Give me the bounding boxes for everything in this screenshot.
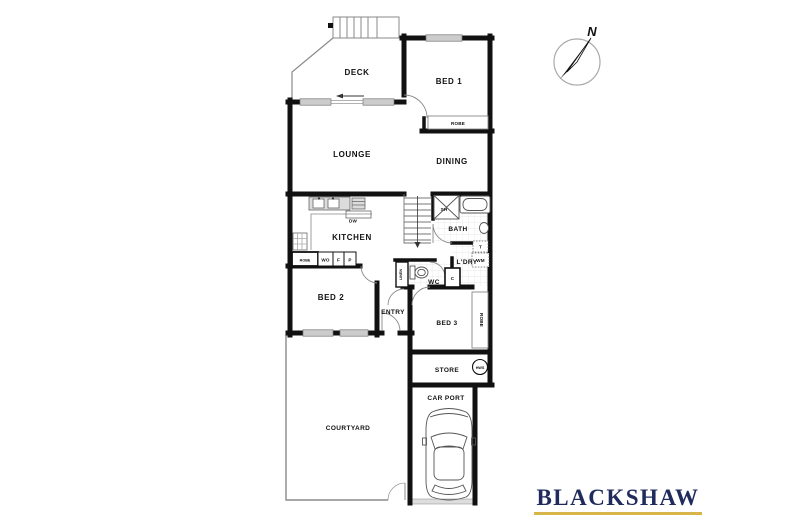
slide-arrow-icon bbox=[336, 94, 343, 99]
toilet-cistern bbox=[410, 266, 415, 279]
agency-logo: BLACKSHAW bbox=[534, 486, 702, 515]
courtyard-outline bbox=[286, 335, 405, 500]
deck-outline bbox=[292, 38, 333, 100]
sliding-door bbox=[331, 94, 364, 104]
label-linen: LINEN bbox=[399, 269, 403, 280]
compass: N bbox=[554, 24, 600, 85]
room-label-kitchen: KITCHEN bbox=[332, 233, 372, 242]
room-label-deck: DECK bbox=[344, 68, 369, 77]
dishwasher-box bbox=[346, 211, 371, 218]
label-c: C bbox=[451, 276, 455, 281]
label-sh: SH bbox=[441, 207, 448, 212]
room-label-bed3: BED 3 bbox=[436, 320, 457, 327]
room-label-bed1: BED 1 bbox=[436, 77, 463, 86]
room-label-robe3: ROBE bbox=[479, 313, 484, 327]
car-icon bbox=[423, 409, 476, 501]
tap-icon bbox=[318, 197, 320, 199]
room-label-ldry: L'DRY bbox=[457, 259, 478, 266]
room-label-carport: CAR PORT bbox=[427, 395, 464, 402]
label-dw: DW bbox=[349, 219, 358, 224]
floorplan-drawing: HWS N DECK BED 1 ROBE LOUNGE DINING KITC… bbox=[0, 0, 790, 527]
stairs-down-arrow-icon bbox=[415, 242, 421, 248]
label-p: P bbox=[348, 258, 351, 263]
label-robe2: ROBE bbox=[300, 259, 311, 263]
room-label-courtyard: COURTYARD bbox=[326, 425, 371, 432]
hws-label: HWS bbox=[476, 366, 485, 370]
internal-stairs bbox=[404, 194, 431, 248]
label-wo: WO bbox=[321, 258, 330, 263]
hws-unit: HWS bbox=[473, 360, 488, 375]
label-f: F bbox=[337, 258, 340, 263]
room-label-robe1: ROBE bbox=[451, 121, 465, 126]
label-wm: WM bbox=[476, 258, 485, 263]
tap-icon bbox=[332, 197, 334, 199]
room-label-wc: WC bbox=[428, 279, 440, 286]
oven-icon bbox=[293, 233, 307, 250]
agency-name: BLACKSHAW bbox=[536, 485, 699, 510]
room-label-entry: ENTRY bbox=[381, 309, 405, 316]
compass-north-label: N bbox=[587, 24, 597, 39]
room-label-bed2: BED 2 bbox=[318, 293, 345, 302]
room-label-bath: BATH bbox=[448, 226, 467, 233]
basin-icon bbox=[480, 223, 489, 234]
room-label-store: STORE bbox=[435, 367, 460, 374]
deck-stairs bbox=[328, 17, 404, 38]
room-label-lounge: LOUNGE bbox=[333, 150, 371, 159]
floorplan-page: HWS N DECK BED 1 ROBE LOUNGE DINING KITC… bbox=[0, 0, 790, 527]
room-label-dining: DINING bbox=[436, 157, 468, 166]
cooktop-icon bbox=[352, 198, 365, 209]
kitchen-fixtures bbox=[293, 197, 372, 250]
label-t: T bbox=[479, 245, 482, 250]
